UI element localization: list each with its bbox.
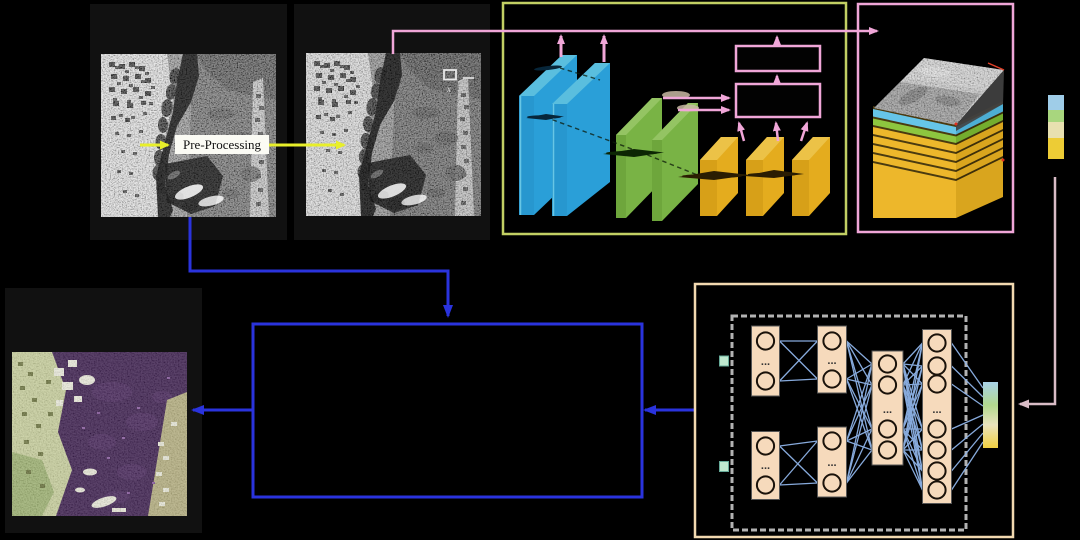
svg-text:...: ... (827, 457, 836, 469)
svg-text:x: x (446, 84, 451, 94)
svg-text:...: ... (932, 404, 941, 416)
svg-text:...: ... (761, 460, 770, 472)
svg-text:...: ... (883, 404, 892, 416)
svg-text:...: ... (827, 355, 836, 367)
svg-text:...: ... (761, 356, 770, 368)
svg-text:Pre-Processing: Pre-Processing (183, 137, 261, 152)
